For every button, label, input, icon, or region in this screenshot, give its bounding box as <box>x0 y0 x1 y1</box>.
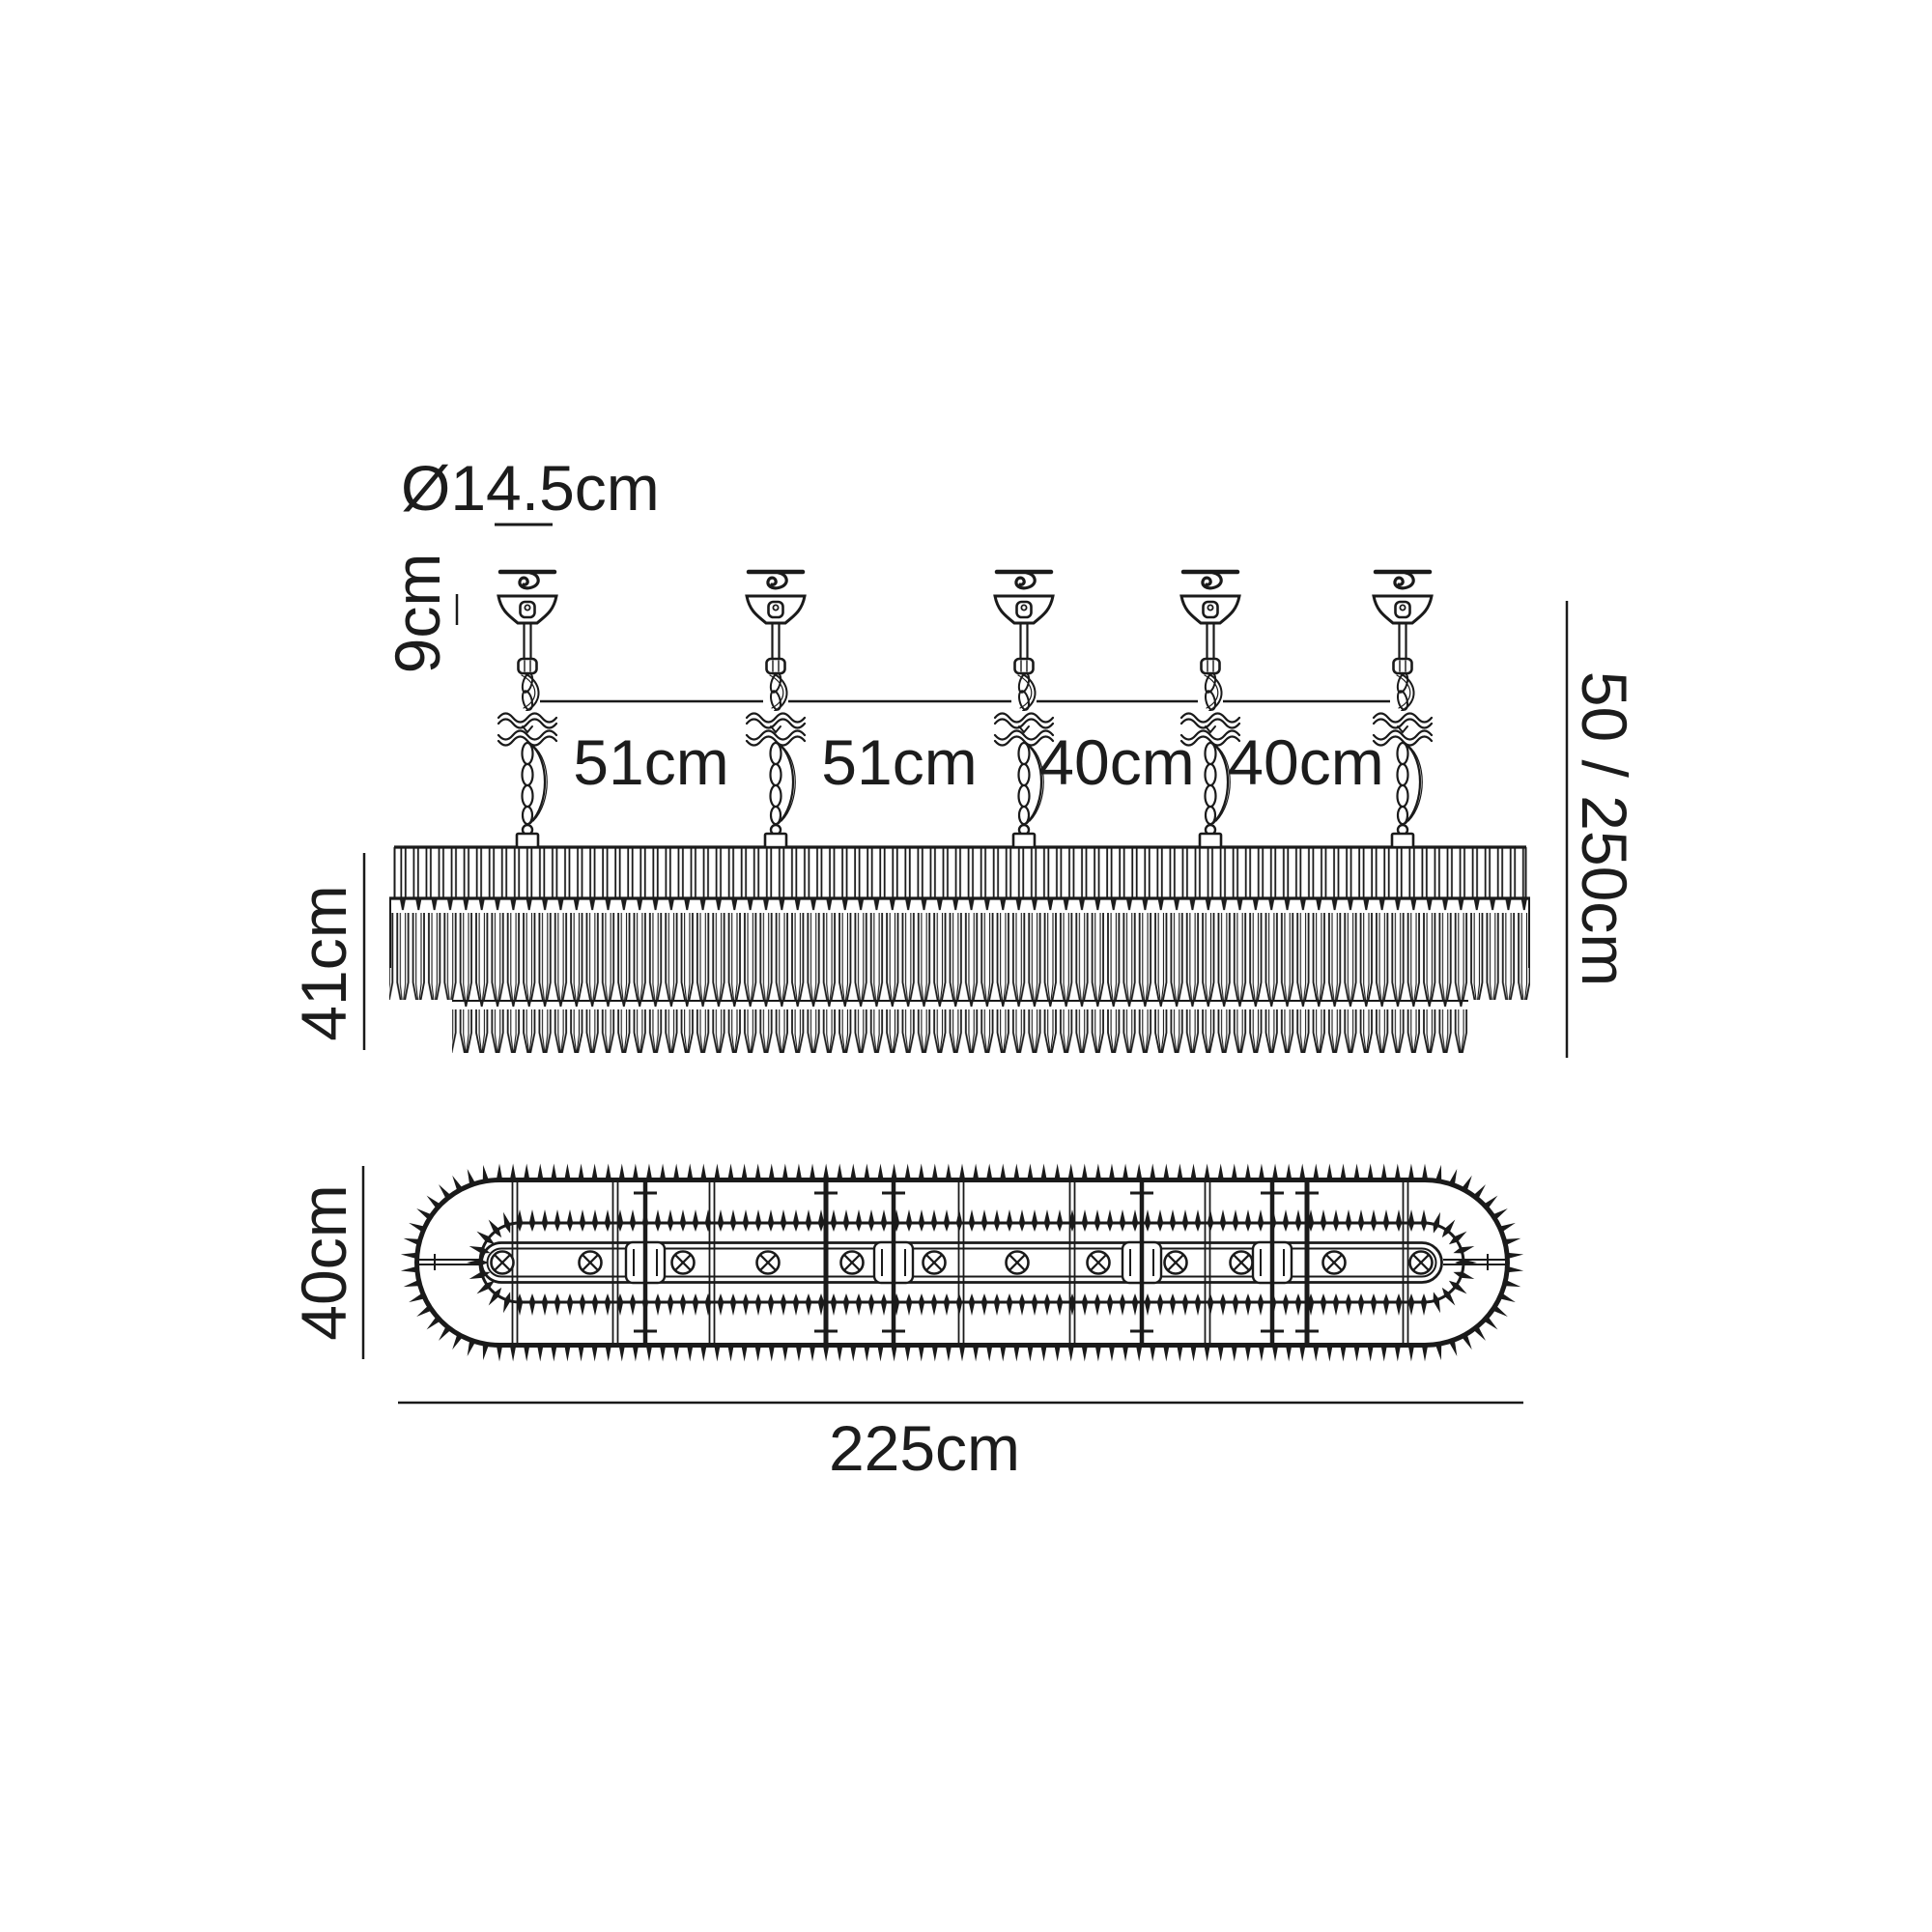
plan-view <box>401 1164 1523 1362</box>
label-spacing-4: 40cm <box>1228 726 1383 798</box>
label-body-height: 41cm <box>288 885 359 1040</box>
diagram-canvas: Ø14.5cm 9cm 51cm 51cm 40cm 40cm 50 / 250… <box>0 0 1932 1932</box>
label-body-depth: 40cm <box>288 1184 359 1340</box>
label-body-length: 225cm <box>829 1412 1020 1484</box>
suspension-hangers <box>497 572 1434 847</box>
front-elevation-view <box>389 572 1530 1053</box>
label-canopy-height: 9cm <box>382 554 453 674</box>
crystal-band-top <box>394 847 1526 898</box>
label-spacing-1: 51cm <box>573 726 728 798</box>
label-drop-height: 50 / 250cm <box>1569 671 1640 987</box>
chandelier-body <box>389 847 1530 1053</box>
label-canopy-diameter: Ø14.5cm <box>401 452 660 524</box>
crystal-tier-middle <box>389 898 1530 1000</box>
label-spacing-2: 51cm <box>821 726 977 798</box>
label-spacing-3: 40cm <box>1038 726 1194 798</box>
chandelier-dimension-diagram: Ø14.5cm 9cm 51cm 51cm 40cm 40cm 50 / 250… <box>0 0 1932 1932</box>
crystal-tier-bottom <box>452 1000 1468 1053</box>
